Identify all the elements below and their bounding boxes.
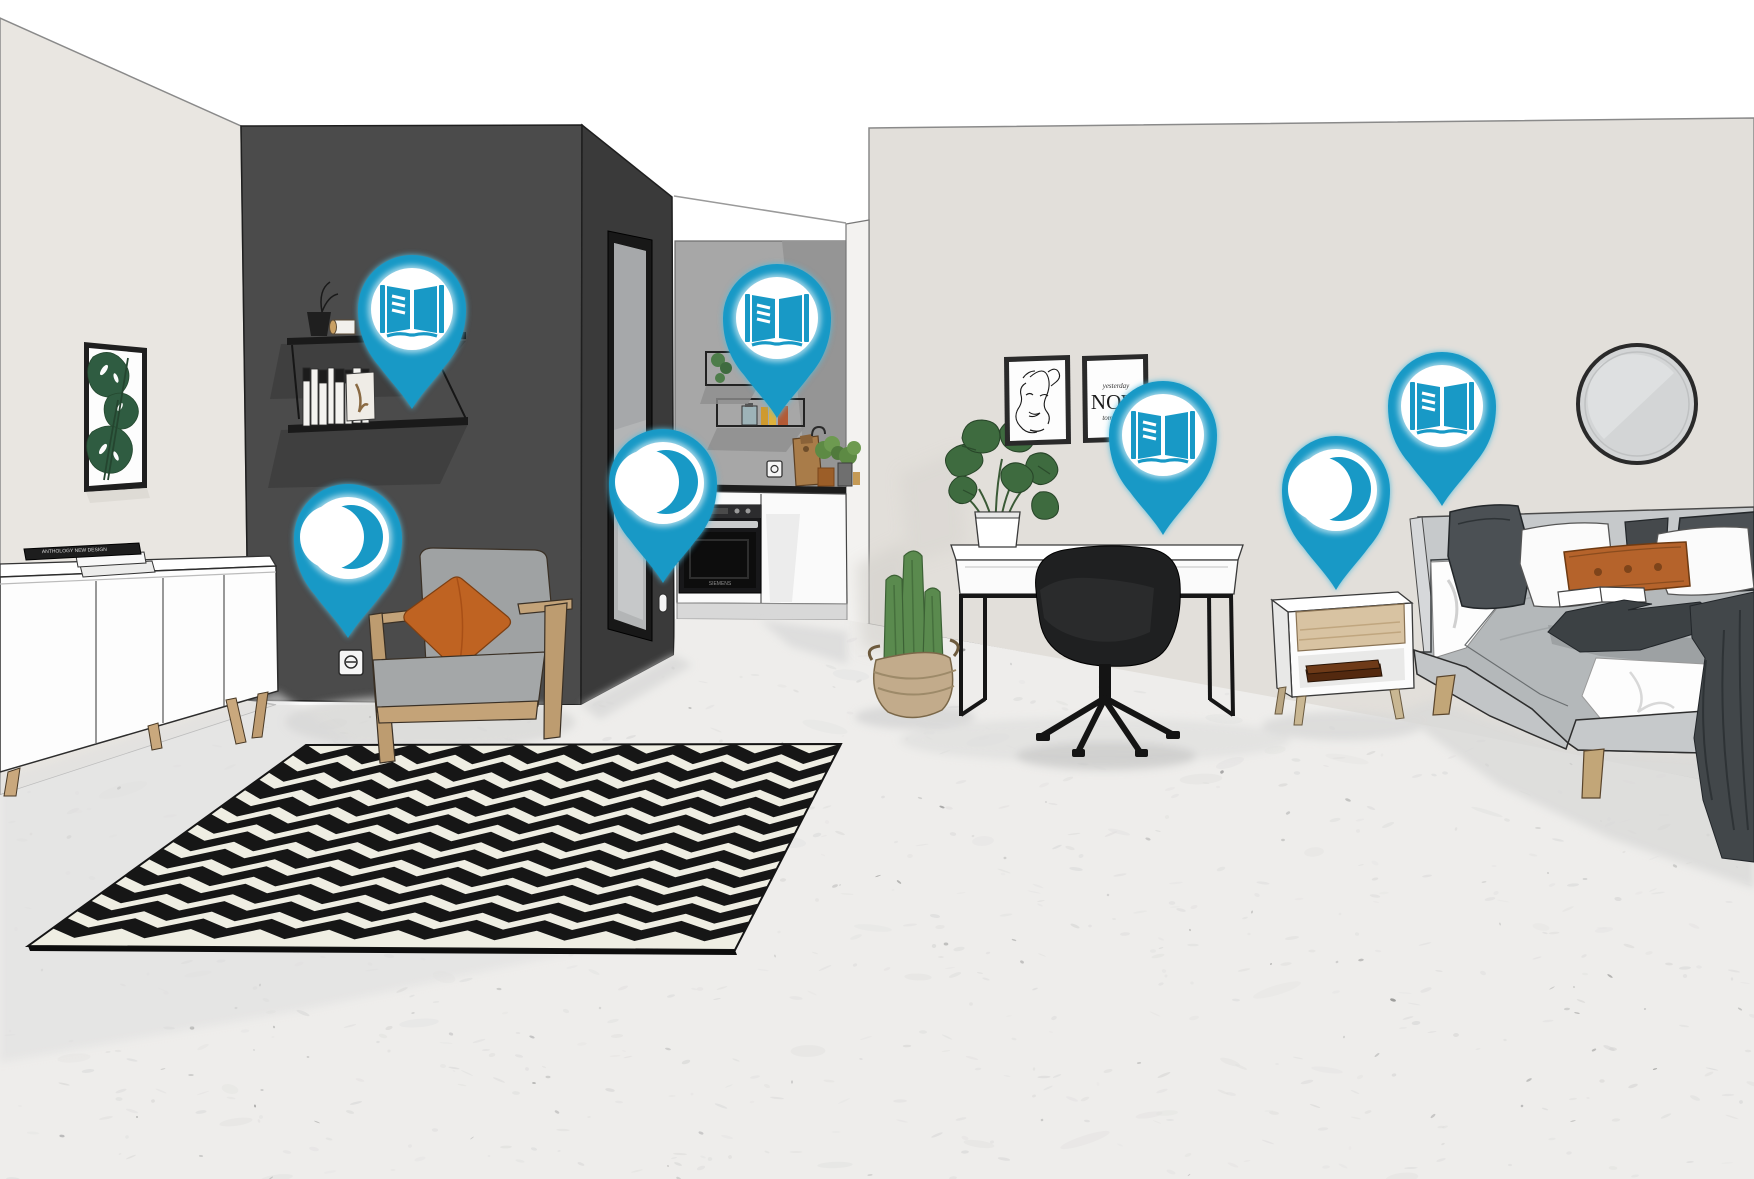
svg-text:yesterday: yesterday: [1102, 382, 1130, 390]
svg-text:SIEMENS: SIEMENS: [709, 581, 732, 587]
